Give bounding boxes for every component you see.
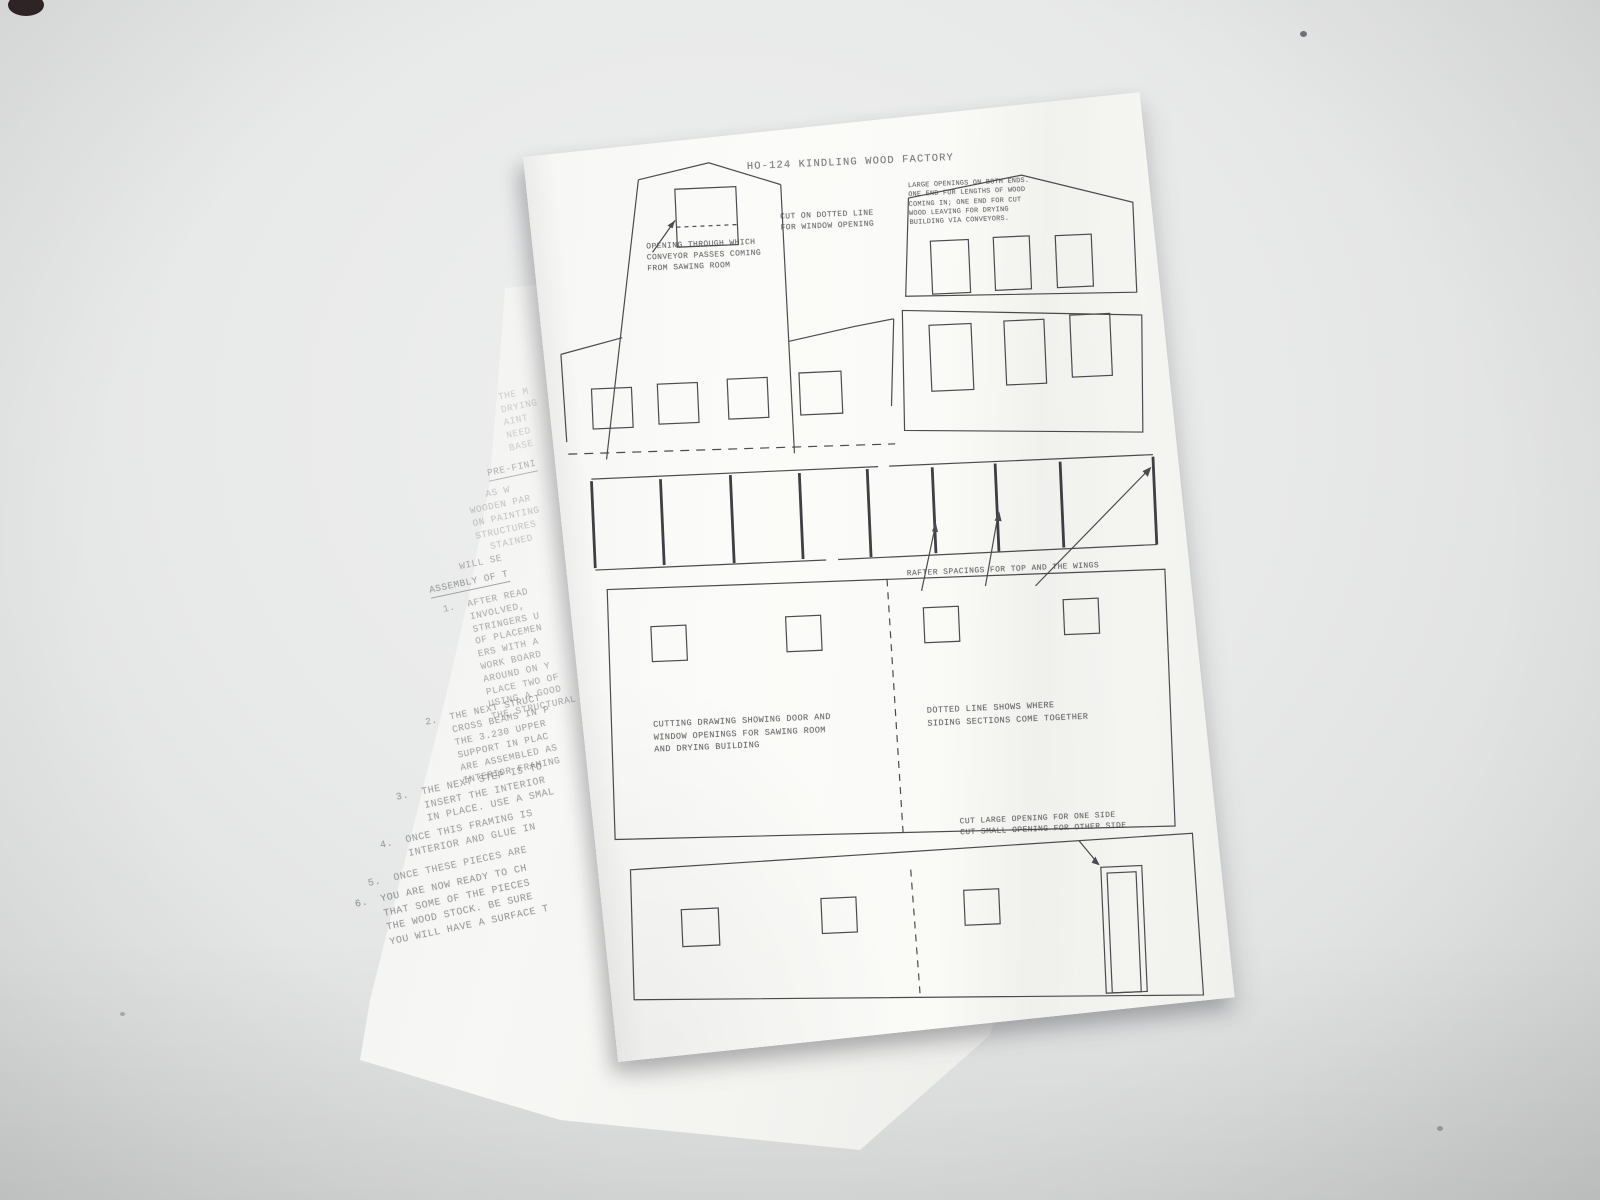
window-cut-note: CUT ON DOTTED LINEFOR WINDOW OPENING: [780, 209, 874, 235]
photo-speck: [120, 1012, 125, 1016]
under-sheet-paragraph: AS WWOODEN PARON PAINTINGSTRUCTURES STAI…: [466, 478, 546, 556]
wall-strip-diagram: [617, 827, 1209, 1048]
photo-speck: [8, 0, 44, 16]
cutting-drawing-note: CUTTING DRAWING SHOWING DOOR ANDWINDOW O…: [653, 711, 832, 757]
siding-joint-dashed-line: [887, 579, 903, 834]
photo-speck: [1437, 1126, 1443, 1131]
large-openings-note: LARGE OPENINGS ON BOTH ENDS.ONE END FOR …: [908, 177, 1031, 229]
side-wall-diagram: [897, 295, 1153, 458]
cutting-diagram-sheet: HO-124 KINDLING WOOD FACTORY OPENING THR…: [523, 92, 1235, 1062]
photo-speck: [1300, 31, 1307, 37]
siding-joint-dashed-line: [911, 869, 921, 997]
sheet-content: HO-124 KINDLING WOOD FACTORY OPENING THR…: [549, 110, 1208, 1046]
conveyor-opening-note: OPENING THROUGH WHICHCONVEYOR PASSES COM…: [646, 238, 762, 275]
front-elevation-diagram: [550, 138, 909, 483]
